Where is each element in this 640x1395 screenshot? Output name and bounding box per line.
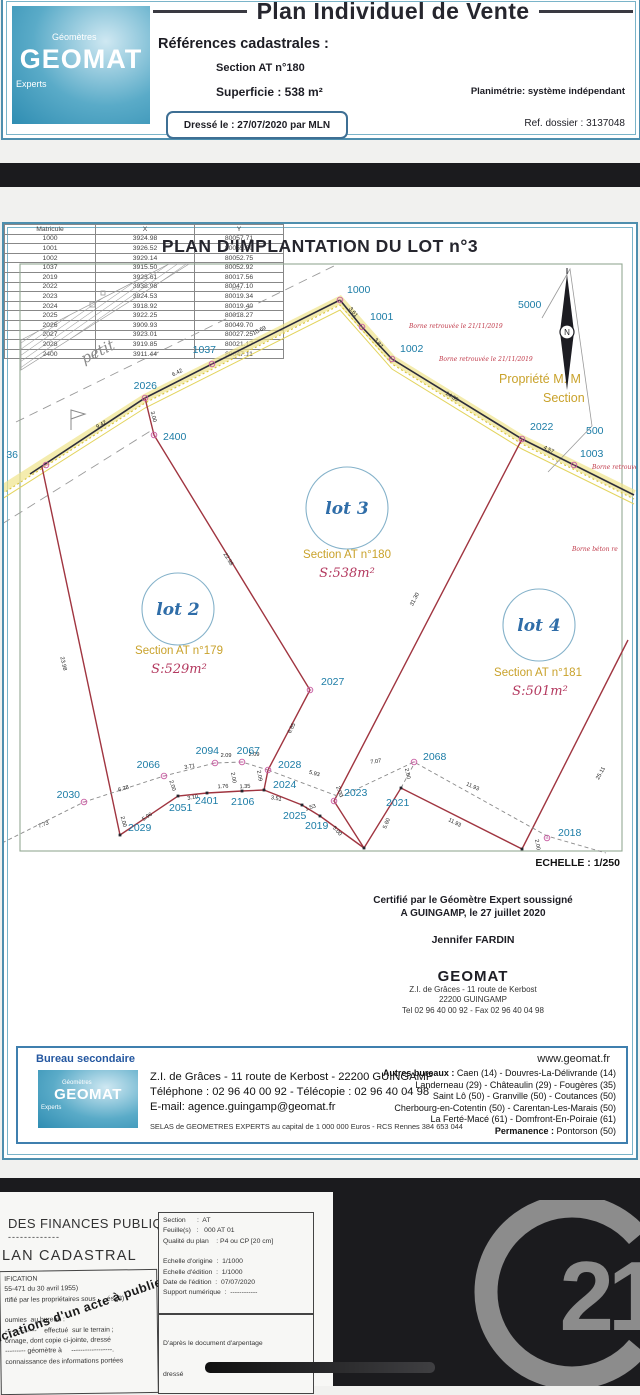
lot-circle [503, 589, 575, 661]
table-cell: 2019 [5, 272, 96, 282]
lot-label: lot 2 [156, 600, 200, 620]
point-label-2021: 2021 [386, 797, 410, 809]
lot-label: lot 4 [517, 616, 560, 636]
point-label-2022: 2022 [530, 421, 554, 433]
survey-dot-x [521, 848, 524, 851]
dashes: ------------- [8, 1232, 60, 1242]
table-row: 20253922.2580018.27 [5, 311, 284, 321]
arpentage-box: D'après le document d'arpentage dressé P… [158, 1314, 314, 1394]
measurement-label: 2.09 [255, 770, 263, 782]
point-label-2028: 2028 [278, 759, 302, 771]
point-label-2068: 2068 [423, 751, 447, 763]
list-item: Feuille(s) : 000 AT 01 [163, 1226, 309, 1236]
plan-cadastral-title: LAN CADASTRAL [2, 1248, 137, 1264]
list-item: Echelle d'origine : 1/1000 [163, 1257, 309, 1267]
measurement-label: 6.85 [287, 722, 297, 734]
company-name: GEOMAT [348, 968, 598, 985]
svg-text:N: N [564, 328, 570, 337]
table-cell: 3918.92 [96, 301, 195, 311]
measurement-label: 5.60 [382, 817, 392, 829]
measurement-label: 7.73 [37, 820, 49, 830]
measurement-label: 6.42 [171, 368, 183, 378]
measurement-label: 5.93 [308, 770, 320, 778]
list-item: Cherbourg-en-Cotentin (50) - Carentan-Le… [383, 1103, 616, 1115]
planimetrie-note: Planimétrie: système indépendant [471, 86, 625, 97]
measurement-label: 1.53 [305, 803, 317, 812]
cadastral-refs-label: Références cadastrales : [158, 36, 329, 52]
point-label-2067: 2067 [237, 745, 261, 757]
plan-text: 500 [586, 425, 604, 437]
table-cell: 3915.50 [96, 263, 195, 273]
survey-dot-2029 [119, 834, 122, 837]
survey-point-2030 [81, 799, 87, 805]
survey-point-2067 [239, 759, 245, 765]
list-item [163, 1247, 309, 1257]
measurement-label: 2.00 [229, 772, 237, 784]
plan-text: Borne retrouvée le 21/11/2019 [438, 356, 533, 363]
measurement-label: 2.00 [119, 816, 128, 828]
table-header: Matricule [5, 225, 96, 235]
table-cell: 80018.27 [195, 311, 284, 321]
table-row: 20263909.9380049.70 [5, 320, 284, 330]
point-label-2030: 2030 [57, 789, 81, 801]
plan-title: PLAN D'IMPLANTATION DU LOT n°3 [4, 236, 636, 257]
century21-logo: 21 [470, 1200, 640, 1386]
survey-dot-x [363, 847, 366, 850]
measurement-label: 1.76 [217, 784, 228, 791]
table-cell: 3938.98 [96, 282, 195, 292]
geomat-logo: Géomètres GEOMAT Experts [12, 6, 150, 124]
north-arrow-icon: N [560, 268, 574, 390]
footer-box: Bureau secondaire www.geomat.fr Géomètre… [16, 1046, 628, 1144]
title-dash-right [539, 10, 633, 13]
point-label-2024: 2024 [273, 779, 297, 791]
superficie-value: Superficie : 538 m² [216, 85, 323, 99]
point-label-2400: 2400 [163, 431, 187, 443]
survey-line [268, 762, 606, 853]
point-label-36: 36 [6, 449, 18, 461]
header-card: Géomètres GEOMAT Experts Plan Individuel… [1, 0, 640, 140]
measurement-label: 3.71 [184, 763, 196, 771]
survey-point-2022 [519, 436, 525, 442]
point-label-2019: 2019 [305, 820, 329, 832]
measurement-label: 2.00 [334, 786, 343, 798]
c21-number: 21 [559, 1241, 640, 1351]
table-cell: 80017.56 [195, 272, 284, 282]
survey-dot-2021 [400, 787, 403, 790]
survey-line [401, 764, 414, 788]
table-cell: 2023 [5, 292, 96, 302]
survey-line [264, 790, 364, 848]
survey-point-1000 [337, 297, 343, 303]
table-header: X [96, 225, 195, 235]
table-row: 10373915.5080052.92 [5, 263, 284, 273]
measurement-label: 3.87 [372, 337, 383, 349]
table-row: 20273923.0180027.25 [5, 330, 284, 340]
survey-point-1002 [389, 356, 395, 362]
ref-dossier: Ref. dossier : 3137048 [524, 118, 625, 129]
logo-name: GEOMAT [12, 44, 150, 75]
point-label-1000: 1000 [347, 284, 371, 296]
list-item: Support numérique : ------------ [163, 1288, 309, 1298]
measurement-label: 3.10 [187, 794, 199, 802]
survey-line [145, 398, 310, 790]
survey-point-2026 [142, 395, 148, 401]
flag-icon [71, 410, 85, 430]
table-cell: 2024 [5, 301, 96, 311]
list-item: Landerneau (29) - Châteaulin (29) - Foug… [383, 1080, 616, 1092]
other-offices: Autres bureaux : Caen (14) - Douvres-La-… [383, 1068, 616, 1137]
table-cell: 3924.53 [96, 292, 195, 302]
table-cell: 80047.10 [195, 282, 284, 292]
plan-text: Propriété M. M [499, 372, 581, 386]
point-label-2094: 2094 [196, 745, 220, 757]
survey-line [42, 467, 120, 835]
survey-line [340, 300, 634, 495]
list-item: La Ferté-Macé (61) - Domfront-En-Poiraie… [383, 1114, 616, 1126]
list-item: Saint Lô (50) - Granville (50) - Coutanc… [383, 1091, 616, 1103]
survey-line [334, 439, 522, 848]
measurement-label: 31.30 [409, 592, 421, 607]
table-cell: 3909.93 [96, 320, 195, 330]
table-header: Y [195, 225, 284, 235]
point-label-2066: 2066 [137, 759, 161, 771]
measurement-label: 6.28 [118, 785, 130, 794]
measurement-label: 3.51 [270, 795, 282, 803]
point-label-1001: 1001 [370, 311, 394, 323]
title-dash-left [153, 10, 247, 13]
plan-text: Borne retrouvée [591, 464, 636, 471]
point-label-2023: 2023 [344, 787, 368, 799]
survey-line [120, 790, 264, 835]
list-item: Z.I. de Grâces - 11 route de Kerbost [348, 985, 598, 995]
survey-point-2094 [212, 760, 218, 766]
point-label-1002: 1002 [400, 343, 424, 355]
measurement-label: 23.98 [58, 656, 67, 671]
measurement-label: 3.61 [347, 306, 358, 318]
list-item: Date de l'édition : 07/07/2020 [163, 1278, 309, 1288]
survey-point-2400 [151, 432, 157, 438]
table-cell: 2022 [5, 282, 96, 292]
surveyor-name: Jennifer FARDIN [348, 934, 598, 946]
measurement-label: 2.00 [403, 768, 411, 780]
list-item: A GUINGAMP, le 27 juillet 2020 [348, 908, 598, 921]
measurement-label: 2.09 [221, 753, 232, 759]
point-label-2018: 2018 [558, 827, 582, 839]
measurement-label: 4.57 [542, 445, 554, 455]
document-title: Plan Individuel de Vente [153, 0, 633, 25]
measurement-label: 7.07 [370, 758, 382, 765]
table-cell: 80049.70 [195, 320, 284, 330]
plan-info-box: Section : ATFeuille(s) : 000 AT 01Qualit… [158, 1212, 314, 1314]
table-row: 20233924.5380019.34 [5, 292, 284, 302]
measurement-label: 5.00 [331, 825, 343, 837]
bottom-section: DES FINANCES PUBLIQUES ------------- LAN… [0, 1178, 640, 1386]
measurement-label: 9.42 [95, 420, 107, 431]
table-row: 20193923.6180017.56 [5, 272, 284, 282]
table-row: 20243918.9280019.40 [5, 301, 284, 311]
measurement-label: 2.09 [249, 752, 260, 758]
measurement-label: 22.98 [222, 552, 235, 567]
section-value: Section AT n°180 [216, 62, 305, 74]
survey-dot-2051 [177, 795, 180, 798]
bureau-secondaire-label: Bureau secondaire [36, 1053, 135, 1065]
survey-point-2068 [411, 759, 417, 765]
plan-text: Borne béton re [571, 546, 618, 553]
company-address: Z.I. de Grâces - 11 route de Kerbost2220… [348, 985, 598, 1016]
survey-line [4, 762, 268, 843]
table-row: 20283919.8580021.17 [5, 340, 284, 350]
lot-section: Section AT n°181 [494, 667, 582, 679]
point-label-2025: 2025 [283, 810, 307, 822]
table-cell: 80021.17 [195, 340, 284, 350]
survey-dot-2401 [206, 792, 209, 795]
list-item: Certifié par le Géomètre Expert soussign… [348, 895, 598, 908]
list-item: Tel 02 96 40 00 92 - Fax 02 96 40 04 98 [348, 1006, 598, 1016]
table-cell: 1037 [5, 263, 96, 273]
point-label-2029: 2029 [128, 822, 152, 834]
point-label-2026: 2026 [134, 380, 158, 392]
survey-line [364, 788, 522, 849]
survey-point-1037 [209, 361, 215, 367]
measurement-label: 14.35 [444, 391, 459, 404]
table-cell: 80019.40 [195, 301, 284, 311]
survey-line [542, 269, 592, 426]
survey-dot-2019 [319, 815, 322, 818]
survey-point-2027 [307, 687, 313, 693]
lot-section: Section AT n°180 [303, 549, 391, 561]
survey-dot-2106 [241, 790, 244, 793]
table-cell: 3923.61 [96, 272, 195, 282]
survey-point-36 [43, 462, 49, 468]
table-cell: 3919.85 [96, 340, 195, 350]
lot-circle [306, 467, 388, 549]
point-label-2027: 2027 [321, 676, 345, 688]
table-row: 20223938.9880047.10 [5, 282, 284, 292]
logo-top-label: Géomètres [52, 32, 144, 42]
redaction-bar [205, 1362, 435, 1373]
point-label-2401: 2401 [195, 795, 219, 807]
table-cell: 3923.01 [96, 330, 195, 340]
survey-dot-2024 [263, 789, 266, 792]
logo-bottom-label: Experts [16, 79, 120, 89]
survey-line [4, 430, 152, 524]
measurement-label: 3.00 [149, 411, 157, 423]
survey-plan: lot 2Section AT n°179S:529m²lot 3Section… [4, 224, 636, 1158]
table-cell: 80047.11 [195, 349, 284, 359]
survey-point-1003 [571, 462, 577, 468]
cert-lines: Certifié par le Géomètre Expert soussign… [348, 895, 598, 920]
table-cell: 80019.34 [195, 292, 284, 302]
table-cell: 2027 [5, 330, 96, 340]
scale-label: ECHELLE : 1/250 [535, 857, 620, 869]
point-label-1003: 1003 [580, 448, 604, 460]
cadastral-extract-page: DES FINANCES PUBLIQUES ------------- LAN… [0, 1192, 333, 1386]
list-item: Qualité du plan : P4 ou CP [20 cm] [163, 1237, 309, 1247]
geomat-logo-small: Géomètres GEOMAT Experts [38, 1070, 138, 1128]
survey-point-2018 [544, 835, 550, 841]
measurement-label: 2.00 [167, 780, 176, 792]
plan-text: Section [543, 391, 585, 405]
table-row: 24003911.4480047.11 [5, 349, 284, 359]
survey-dot-2025 [301, 804, 304, 807]
survey-line [522, 640, 628, 849]
lot-area: S:538m² [319, 566, 375, 581]
table-cell: 2025 [5, 311, 96, 321]
survey-point-2028 [265, 767, 271, 773]
survey-point-2066 [161, 773, 167, 779]
lot-area: S:501m² [512, 684, 568, 699]
point-label-2106: 2106 [231, 796, 255, 808]
lot-area: S:529m² [151, 662, 207, 677]
list-item: Section : AT [163, 1216, 309, 1226]
list-item: connaissance des informations portées [5, 1356, 153, 1368]
table-cell: 2028 [5, 340, 96, 350]
table-cell: 80027.25 [195, 330, 284, 340]
survey-line [548, 426, 592, 472]
survey-point-1001 [359, 324, 365, 330]
list-item: Echelle d'édition : 1/1000 [163, 1268, 309, 1278]
lot-label: lot 3 [325, 499, 369, 519]
measurement-label: 1.35 [239, 784, 250, 791]
table-cell: 2026 [5, 320, 96, 330]
table-cell: 2400 [5, 349, 96, 359]
point-label-2051: 2051 [169, 802, 193, 814]
plan-text: Borne retrouvée le 21/11/2019 [408, 323, 503, 330]
measurement-label: 2.00 [533, 839, 541, 851]
measurement-label: 25.11 [595, 766, 607, 781]
table-cell: 3922.25 [96, 311, 195, 321]
table-cell: 3911.44 [96, 349, 195, 359]
separator-band [0, 163, 640, 187]
measurement-label: 11.93 [447, 817, 462, 829]
survey-point-2023 [331, 798, 337, 804]
website-url: www.geomat.fr [537, 1053, 610, 1065]
lot-circle [142, 573, 214, 645]
list-item: 22200 GUINGAMP [348, 995, 598, 1005]
table-cell: 80052.92 [195, 263, 284, 273]
lot-section: Section AT n°179 [135, 645, 223, 657]
measurement-label: 11.93 [465, 782, 480, 793]
measurement-label: 5.96 [141, 812, 153, 823]
certification-block: Certifié par le Géomètre Expert soussign… [348, 895, 598, 1016]
plan-card: PLAN D'IMPLANTATION DU LOT n°3 lot 2Sect… [2, 222, 638, 1160]
dresse-date-box: Dressé le : 27/07/2020 par MLN [166, 111, 348, 139]
plan-text: 5000 [518, 299, 542, 311]
